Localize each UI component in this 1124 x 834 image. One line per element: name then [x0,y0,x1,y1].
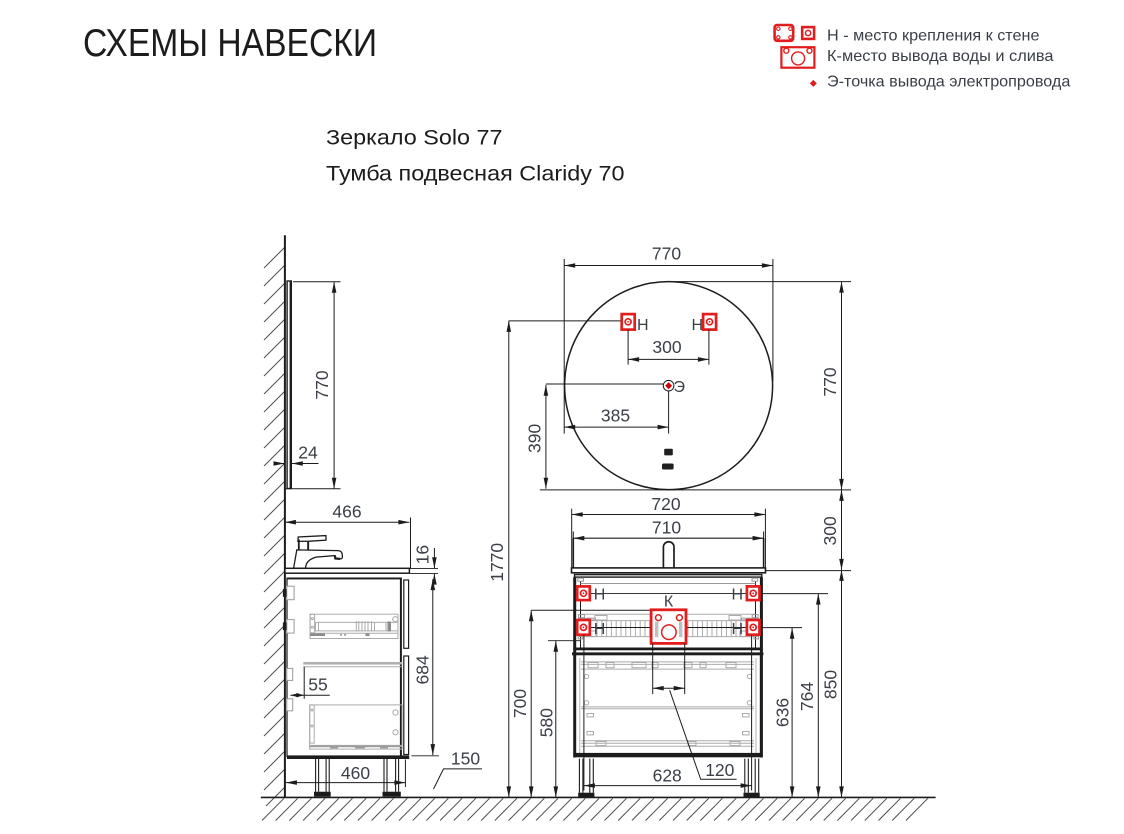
svg-text:Зеркало Solo 77: Зеркало Solo 77 [326,126,503,150]
svg-text:К: К [664,594,674,611]
svg-text:Н: Н [732,586,744,603]
svg-text:460: 460 [341,763,370,783]
svg-text:700: 700 [510,689,530,718]
svg-text:Тумба подвесная Claridy 70: Тумба подвесная Claridy 70 [326,161,625,185]
svg-text:300: 300 [652,337,681,357]
svg-text:710: 710 [652,518,681,538]
svg-text:636: 636 [772,698,792,727]
svg-text:770: 770 [652,244,681,264]
svg-text:385: 385 [601,406,630,426]
svg-text:466: 466 [332,502,361,522]
svg-text:Н: Н [594,621,606,638]
svg-text:16: 16 [412,545,432,564]
svg-text:К-место вывода воды и слива: К-место вывода воды и слива [827,48,1054,65]
svg-text:628: 628 [653,766,682,786]
svg-text:Н: Н [692,317,704,334]
svg-text:770: 770 [820,367,840,396]
svg-text:764: 764 [797,682,817,711]
svg-text:580: 580 [537,708,557,737]
svg-text:Н: Н [732,621,744,638]
svg-text:850: 850 [820,670,840,699]
svg-text:55: 55 [308,675,327,695]
svg-text:684: 684 [413,655,433,684]
svg-text:390: 390 [525,424,545,453]
svg-text:24: 24 [298,443,318,463]
svg-text:720: 720 [651,494,680,514]
svg-text:1770: 1770 [487,543,507,582]
svg-text:Э: Э [674,379,686,396]
svg-text:Н: Н [594,586,606,603]
svg-text:770: 770 [312,370,332,399]
svg-text:150: 150 [451,749,480,769]
svg-text:Н: Н [637,317,649,334]
svg-text:120: 120 [705,760,734,780]
svg-text:Н - место крепления к стене: Н - место крепления к стене [827,28,1040,45]
svg-text:СХЕМЫ НАВЕСКИ: СХЕМЫ НАВЕСКИ [83,22,377,65]
svg-text:Э-точка вывода электропровода: Э-точка вывода электропровода [827,74,1070,91]
svg-text:300: 300 [820,516,840,545]
